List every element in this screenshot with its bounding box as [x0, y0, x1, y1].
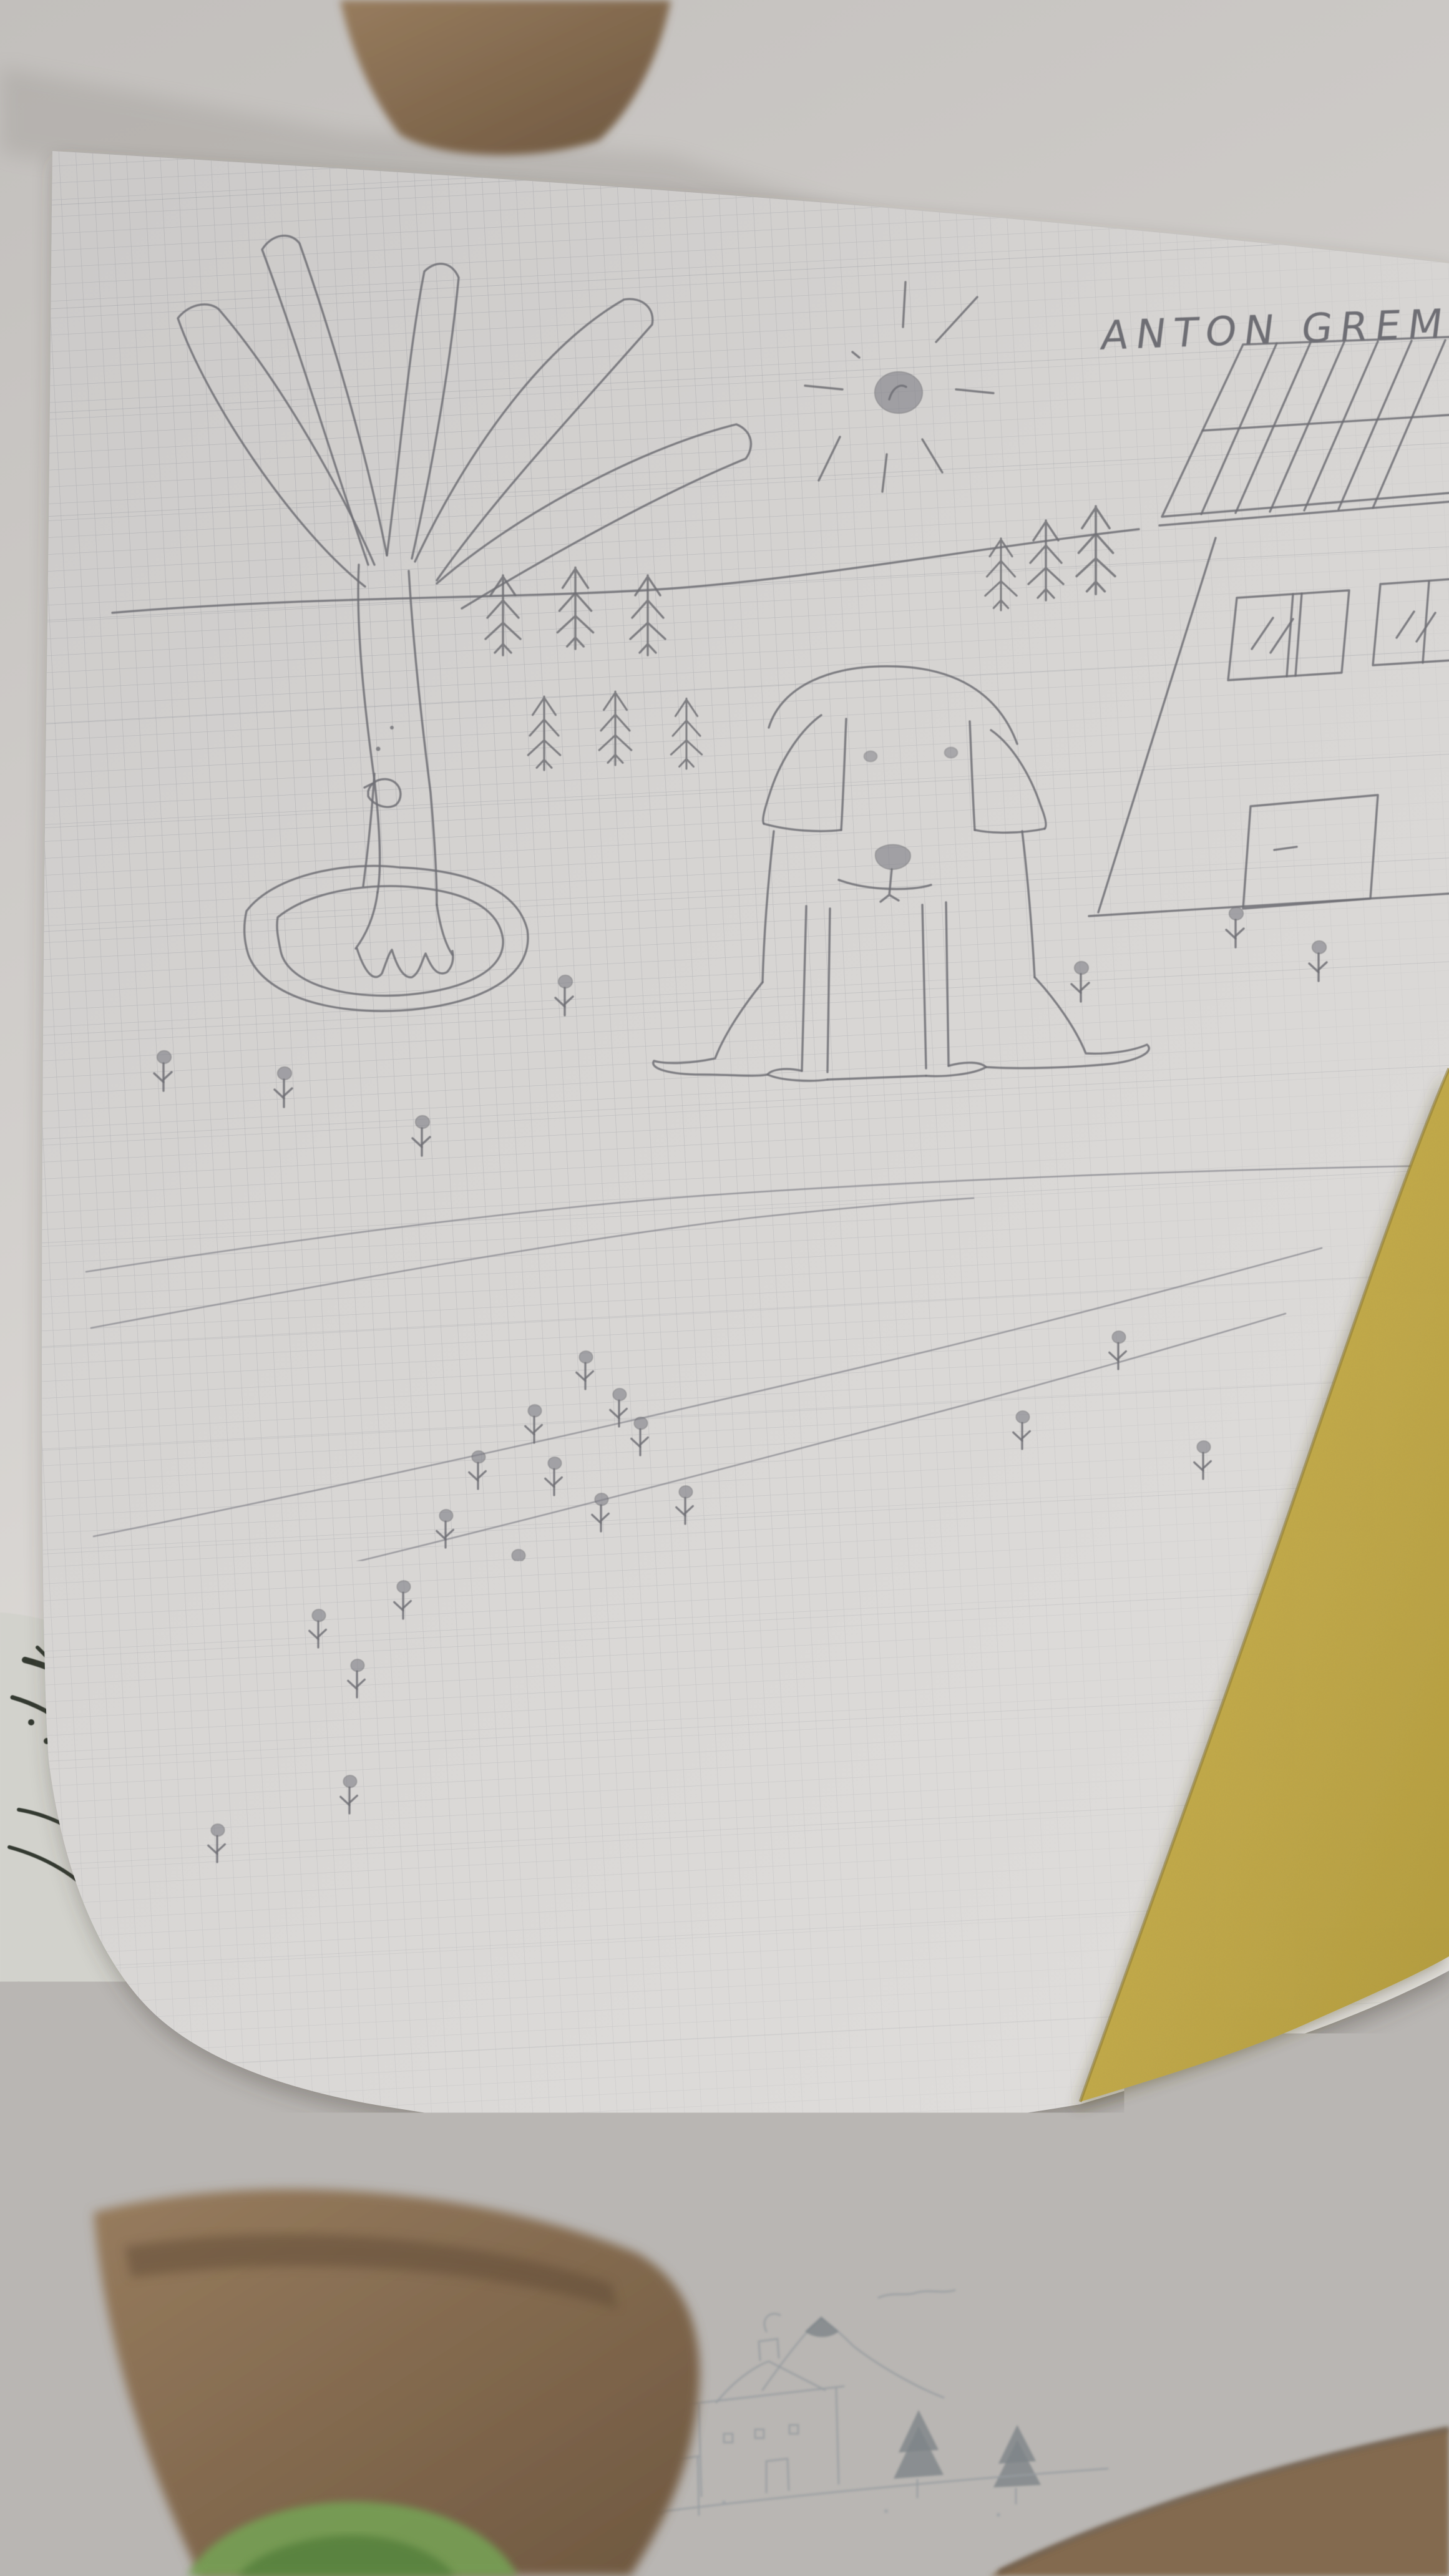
- brown-craft-object: [94, 2189, 700, 2576]
- photo-of-pinned-drawings: ANTON GREM: [0, 0, 1449, 2576]
- photo-scene: ANTON GREM: [0, 0, 1449, 2576]
